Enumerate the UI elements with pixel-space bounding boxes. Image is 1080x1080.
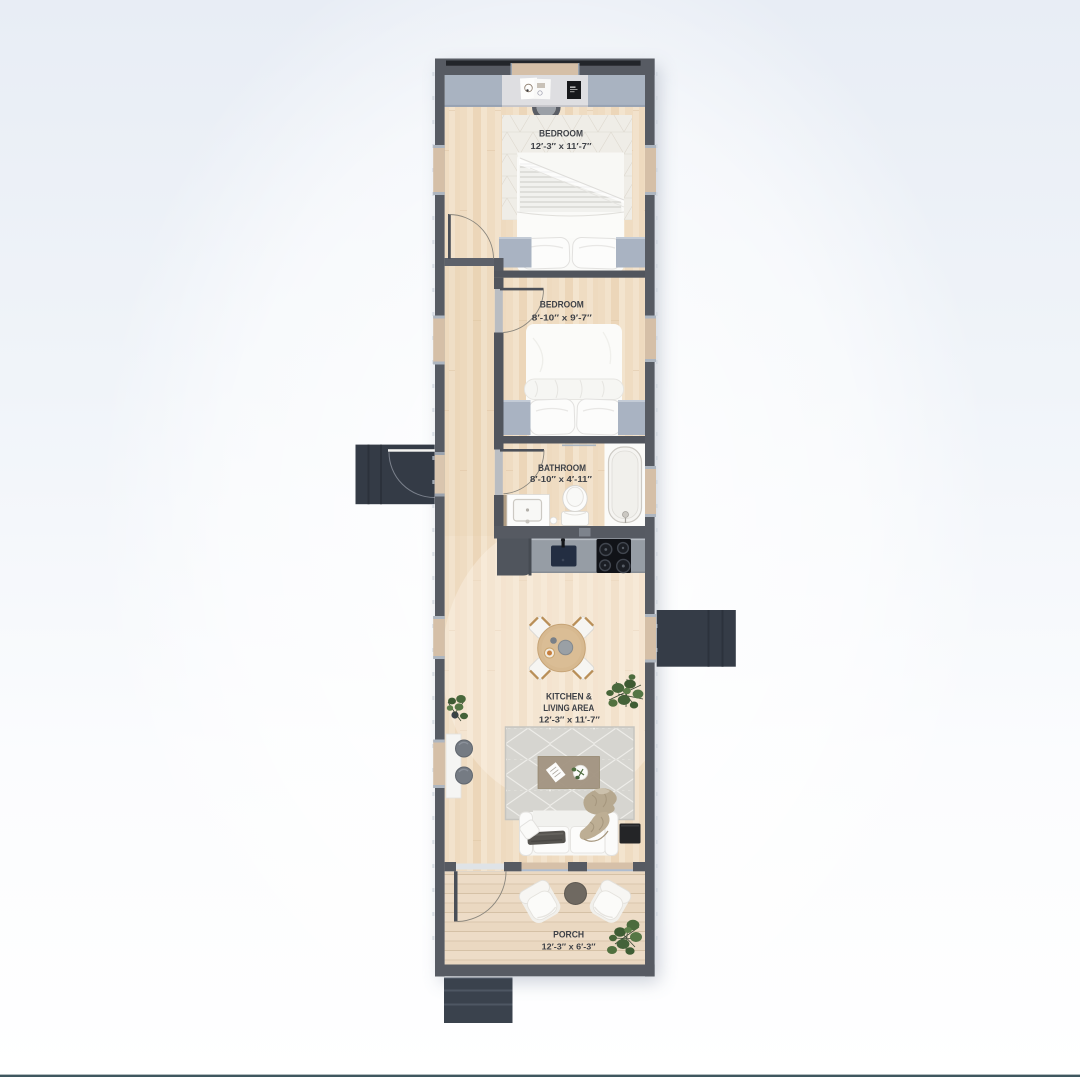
- svg-text:PORCH: PORCH: [553, 930, 584, 940]
- svg-text:12′-3″ x 11′-7″: 12′-3″ x 11′-7″: [531, 141, 592, 151]
- svg-text:BATHROOM: BATHROOM: [538, 463, 586, 473]
- svg-text:KITCHEN &: KITCHEN &: [546, 692, 592, 702]
- svg-text:12′-3″ x 6′-3″: 12′-3″ x 6′-3″: [542, 942, 596, 952]
- svg-text:8′-10″ x 9′-7″: 8′-10″ x 9′-7″: [532, 313, 592, 323]
- svg-text:8′-10″ x 4′-11″: 8′-10″ x 4′-11″: [530, 474, 592, 484]
- svg-text:BEDROOM: BEDROOM: [539, 129, 583, 139]
- svg-text:LIVING AREA: LIVING AREA: [543, 703, 594, 713]
- svg-text:12′-3″ x 11′-7″: 12′-3″ x 11′-7″: [539, 715, 600, 725]
- svg-text:BEDROOM: BEDROOM: [540, 300, 584, 310]
